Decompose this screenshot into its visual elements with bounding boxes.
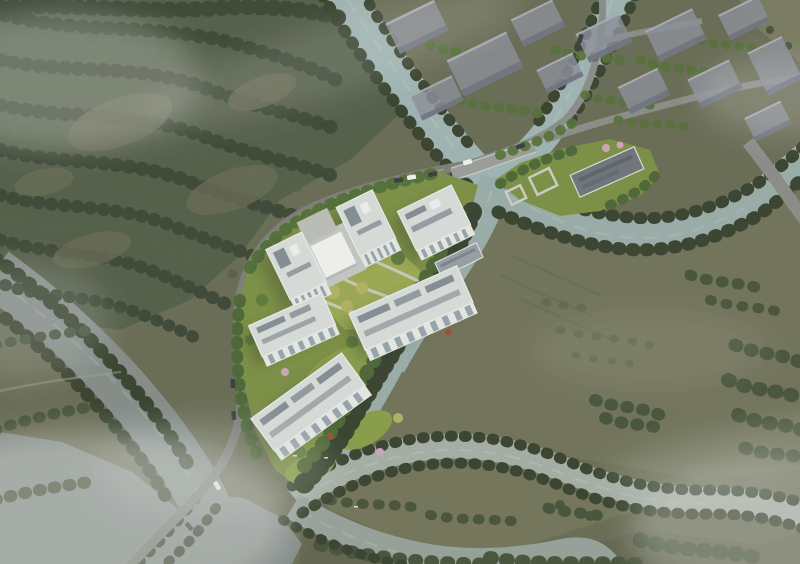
aerial-rendering (0, 0, 800, 564)
atmosphere-tint (0, 0, 800, 564)
aerial-rendering-stage (0, 0, 800, 564)
